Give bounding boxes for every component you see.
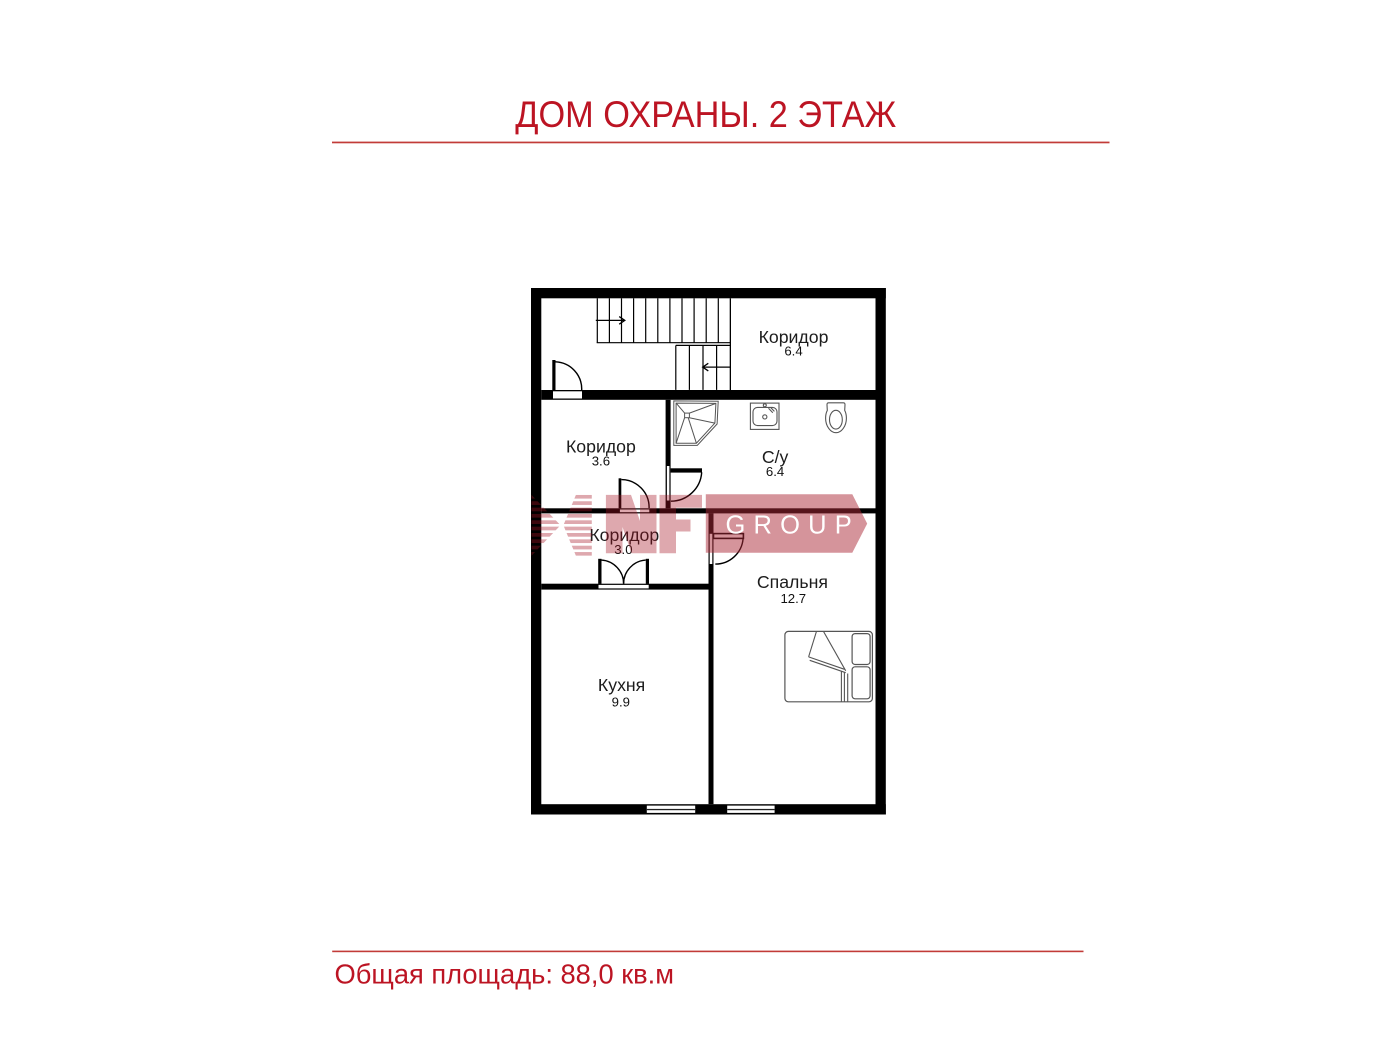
svg-text:GROUP: GROUP	[726, 512, 861, 540]
svg-text:3.6: 3.6	[592, 453, 610, 468]
svg-text:6.4: 6.4	[784, 344, 802, 359]
svg-text:9.9: 9.9	[612, 695, 630, 710]
svg-text:Кухня: Кухня	[598, 675, 645, 695]
svg-text:12.7: 12.7	[780, 591, 806, 606]
svg-text:6.4: 6.4	[766, 464, 784, 479]
svg-text:Спальня: Спальня	[757, 572, 828, 592]
svg-text:ДОМ ОХРАНЫ. 2 ЭТАЖ: ДОМ ОХРАНЫ. 2 ЭТАЖ	[515, 94, 896, 135]
svg-text:Общая площадь: 88,0 кв.м: Общая площадь: 88,0 кв.м	[335, 958, 675, 989]
